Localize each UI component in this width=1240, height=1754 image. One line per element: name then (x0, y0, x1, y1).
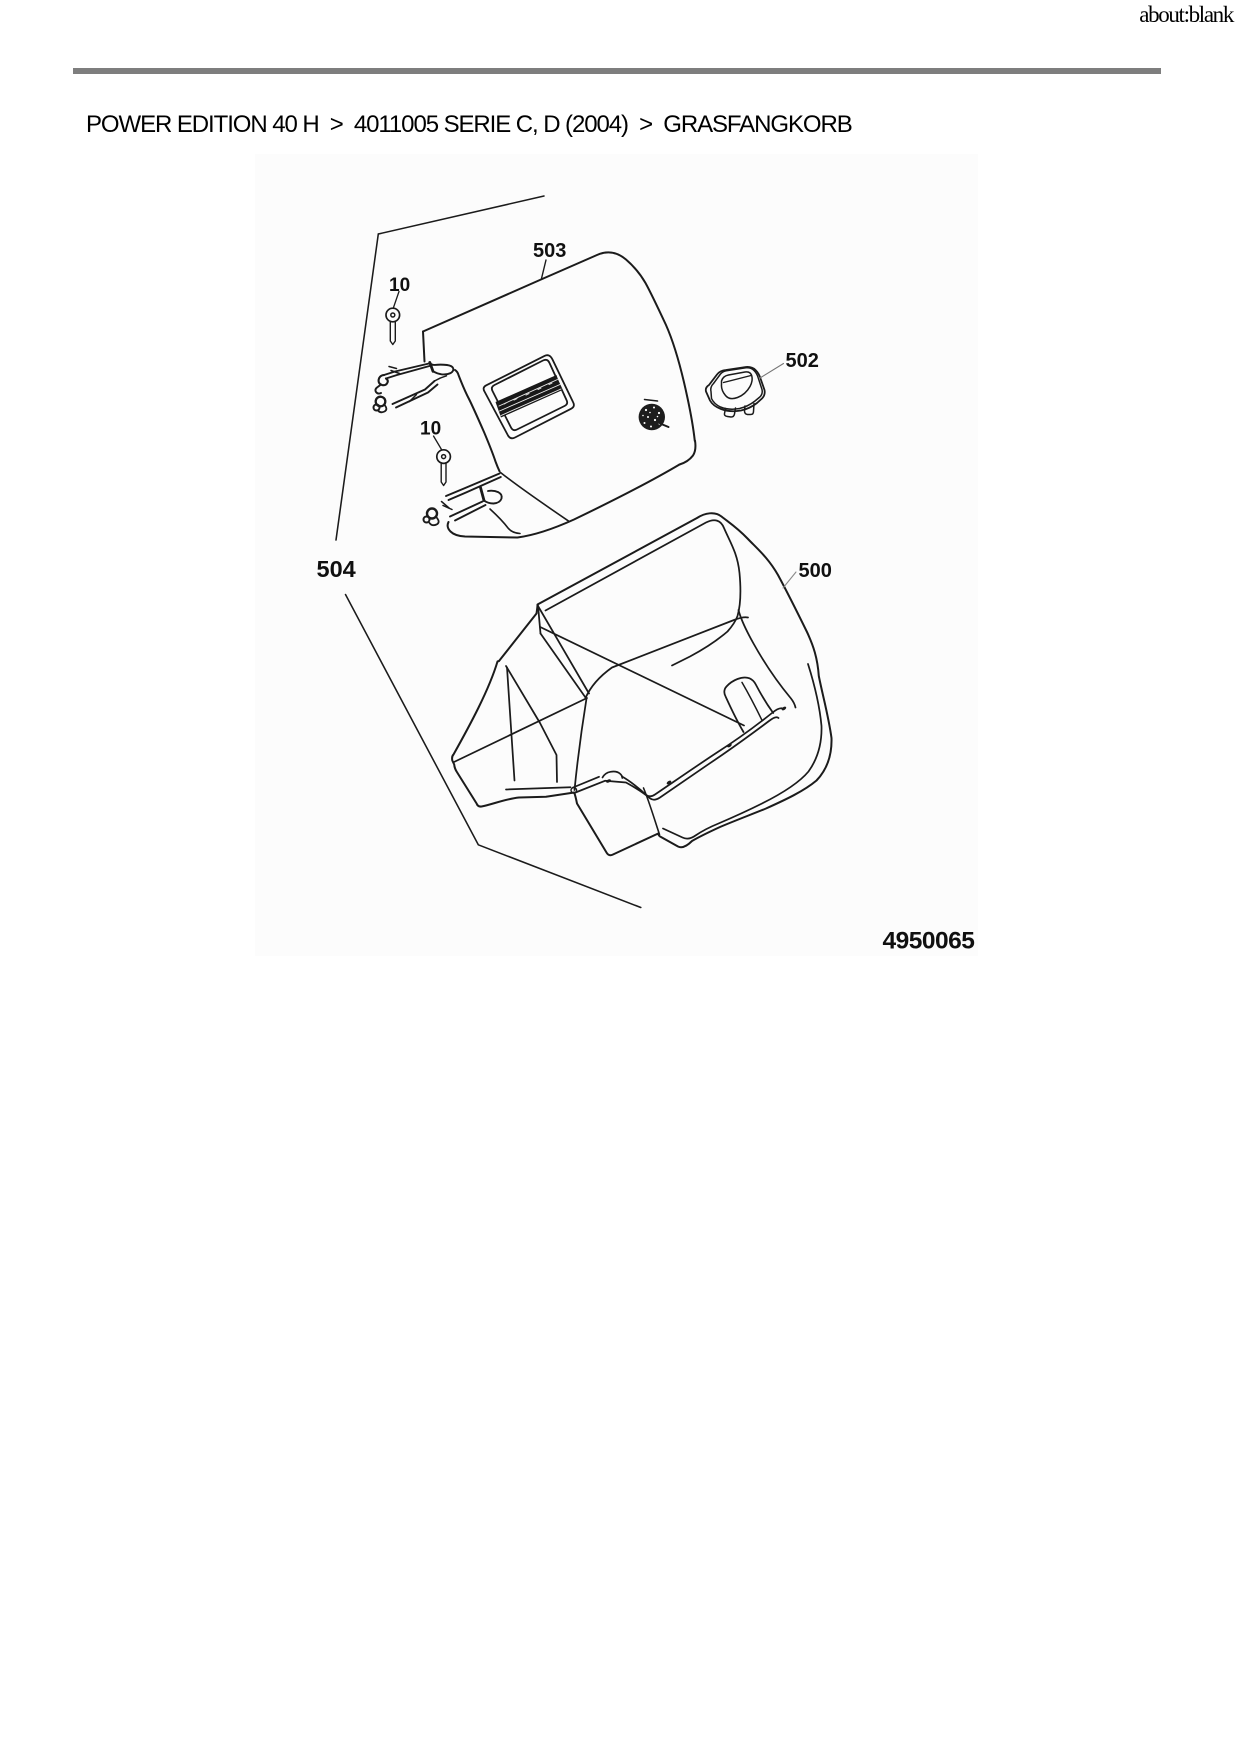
svg-text:503: 503 (533, 240, 566, 262)
svg-text:502: 502 (786, 350, 819, 372)
svg-text:10: 10 (389, 275, 410, 296)
svg-text:4950065: 4950065 (883, 928, 975, 955)
svg-text:10: 10 (420, 419, 441, 440)
svg-text:504: 504 (317, 556, 356, 582)
svg-text:500: 500 (799, 560, 832, 582)
